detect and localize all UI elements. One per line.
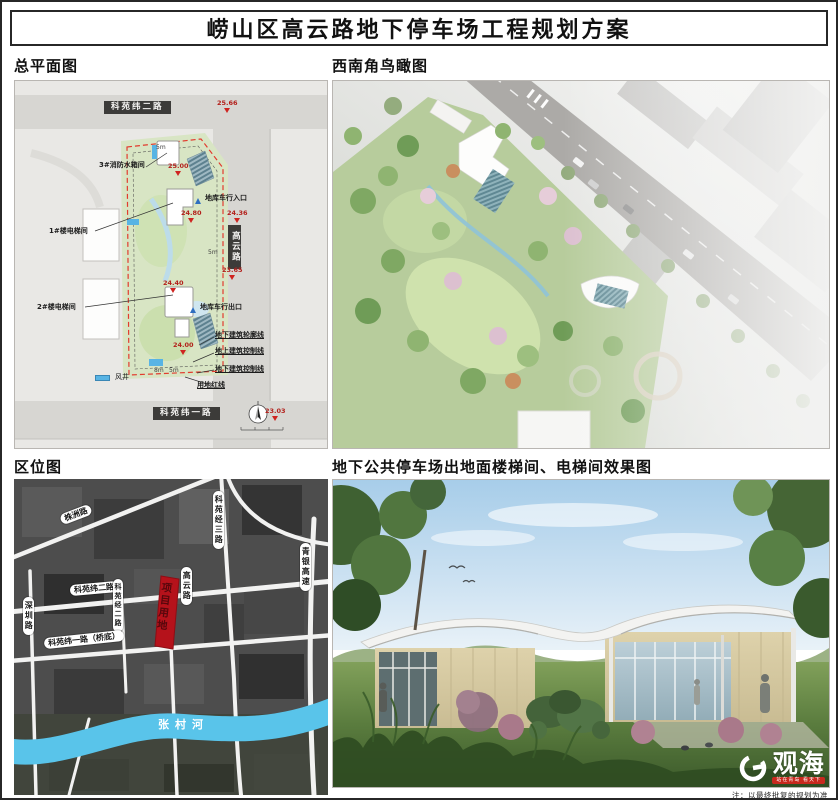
callout-control-underground: 地下建筑控制线 bbox=[215, 366, 264, 373]
map-road-keyuanjing3: 科苑经三路 bbox=[213, 491, 224, 549]
elevation-marker: 24.00 bbox=[173, 342, 194, 355]
dim-label: 5m bbox=[156, 144, 166, 151]
map-road-keyuanjing2: 科苑经二路 bbox=[113, 579, 123, 632]
road-label-gaoyun: 高云路 bbox=[228, 225, 241, 269]
neighbor-building bbox=[83, 279, 119, 339]
elevation-marker: 24.80 bbox=[181, 210, 202, 223]
aerial-section-label: 西南角鸟瞰图 bbox=[332, 55, 428, 76]
render-section-label: 地下公共停车场出地面楼梯间、电梯间效果图 bbox=[332, 456, 652, 477]
site-plan-panel: 科苑纬二路 科苑纬一路 高云路 3#消防水箱间 1#楼电梯间 2#楼电梯间 地库… bbox=[14, 80, 328, 449]
dim-label: 8m bbox=[154, 367, 164, 374]
site-plan-graphic bbox=[15, 81, 327, 448]
location-map-panel: 株洲路 科苑经三路 青银高速 科苑纬二路 科苑经二路 高云路 深圳路 科苑纬一路… bbox=[14, 479, 328, 795]
elevation-marker: 25.66 bbox=[217, 100, 238, 113]
road-label-keyuanwei1: 科苑纬一路 bbox=[153, 407, 220, 420]
dim-label: 5m bbox=[169, 367, 179, 374]
elevation-marker: 24.36 bbox=[227, 210, 248, 223]
wind-shaft-legend-label: 风井 bbox=[115, 374, 129, 381]
dim-label: 5m bbox=[208, 249, 218, 256]
aerial-view-graphic bbox=[333, 81, 829, 448]
wind-shaft bbox=[149, 359, 163, 366]
logo-name: 观海 bbox=[773, 751, 825, 776]
entrance-marker bbox=[195, 195, 201, 204]
neighbor-building bbox=[83, 209, 119, 261]
callout-entrance: 地库车行入口 bbox=[205, 195, 247, 202]
callout-fire-tank: 3#消防水箱间 bbox=[99, 162, 145, 169]
location-section-label: 区位图 bbox=[14, 456, 62, 477]
map-road-gaoyun: 高云路 bbox=[181, 567, 192, 605]
callout-outline-underground: 地下建筑轮廓线 bbox=[215, 332, 264, 339]
wind-shaft bbox=[127, 219, 139, 225]
wind-shaft-legend-swatch bbox=[95, 375, 110, 381]
callout-red-line: 用地红线 bbox=[197, 382, 225, 389]
exit-marker bbox=[190, 304, 196, 313]
elevation-marker: 24.40 bbox=[163, 280, 184, 293]
elevation-marker: 25.00 bbox=[168, 163, 189, 176]
site-plan-section-label: 总平面图 bbox=[14, 55, 78, 76]
map-road-qingyin: 青银高速 bbox=[300, 543, 311, 591]
guanhai-logo: 观海 站在青岛 看天下 bbox=[737, 751, 825, 784]
river-label: 张村河 bbox=[158, 716, 209, 732]
logo-tagline: 站在青岛 看天下 bbox=[772, 777, 825, 784]
elevation-marker: 23.65 bbox=[222, 267, 243, 280]
elevation-marker: 23.03 bbox=[265, 408, 286, 421]
render-panel: 观海 站在青岛 看天下 bbox=[332, 479, 830, 788]
disclaimer-note: 注：以最终批复的规划为准 bbox=[732, 790, 828, 800]
map-road-shenzhen: 深圳路 bbox=[23, 597, 34, 635]
plan-document-page: 崂山区高云路地下停车场工程规划方案 总平面图 西南角鸟瞰图 bbox=[0, 0, 838, 800]
render-graphic bbox=[333, 480, 829, 787]
callout-control-above: 地上建筑控制线 bbox=[215, 348, 264, 355]
pigeon bbox=[681, 746, 689, 751]
callout-elevator1: 1#楼电梯间 bbox=[49, 228, 88, 235]
road-top bbox=[15, 95, 327, 129]
pigeon bbox=[705, 743, 713, 748]
aerial-view-panel bbox=[332, 80, 830, 449]
document-title: 崂山区高云路地下停车场工程规划方案 bbox=[206, 12, 631, 44]
callout-exit: 地库车行出口 bbox=[200, 304, 242, 311]
document-title-box: 崂山区高云路地下停车场工程规划方案 bbox=[10, 10, 828, 46]
callout-elevator2: 2#楼电梯间 bbox=[37, 304, 76, 311]
guanhai-g-icon bbox=[737, 752, 769, 784]
road-label-keyuanwei2: 科苑纬二路 bbox=[104, 101, 171, 114]
